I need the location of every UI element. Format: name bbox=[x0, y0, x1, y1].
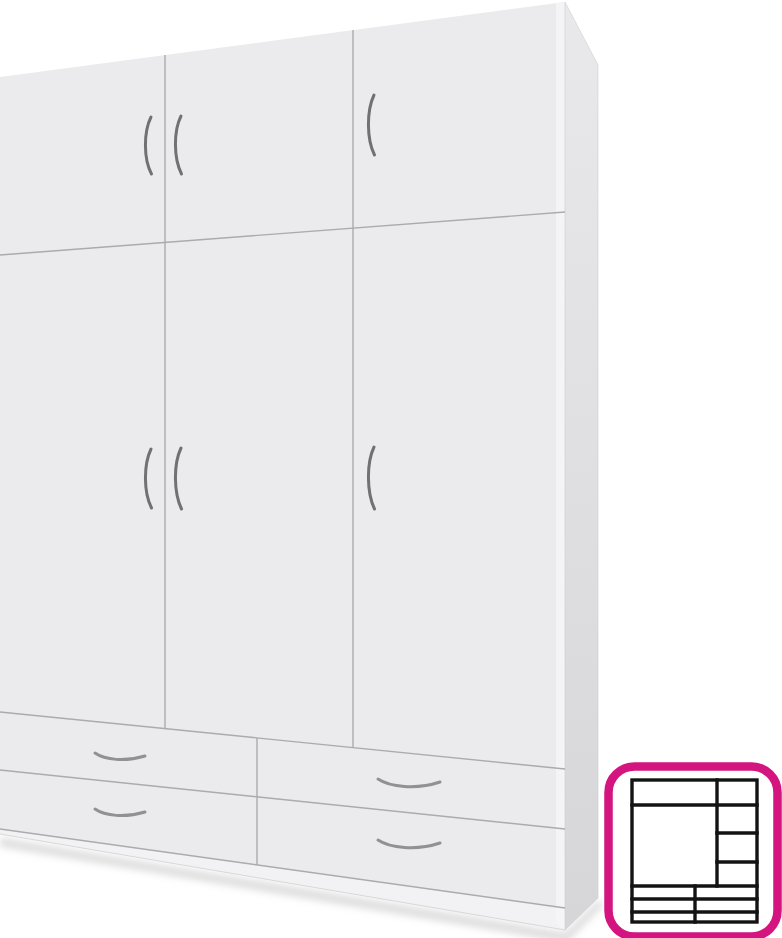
wardrobe-render bbox=[0, 0, 782, 938]
wardrobe-front-face bbox=[0, 2, 565, 930]
front-edge-highlight bbox=[556, 2, 565, 930]
product-image[interactable] bbox=[0, 0, 782, 938]
layout-schematic-badge[interactable] bbox=[609, 767, 778, 937]
wardrobe-side-face bbox=[565, 2, 598, 930]
